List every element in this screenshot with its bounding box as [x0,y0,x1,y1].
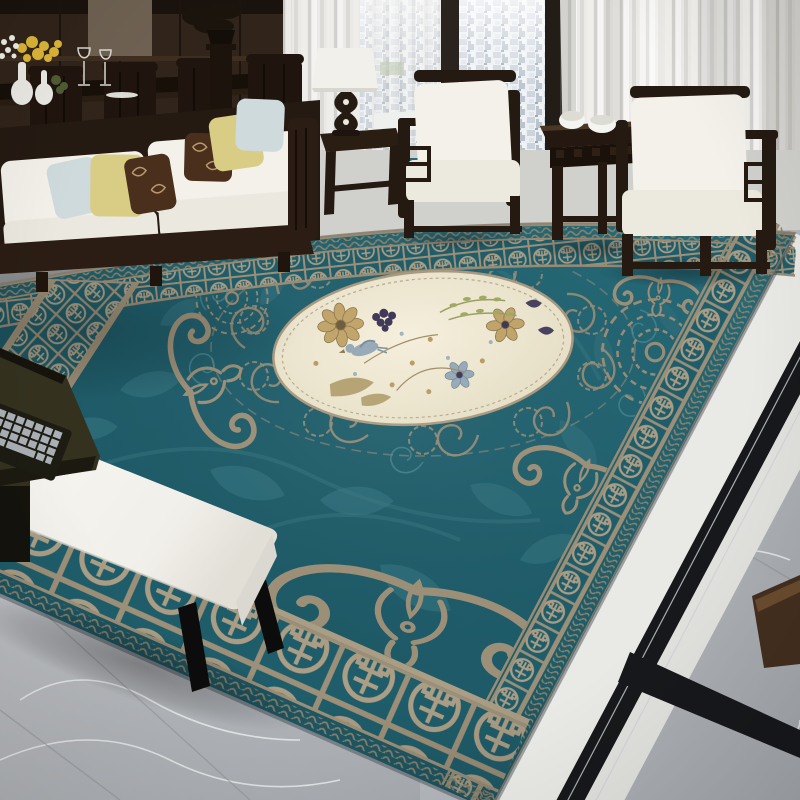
living-room-rug-photo [0,0,800,800]
tea-table-shadow [534,237,658,259]
armchair-left-shadow [398,229,526,251]
photo-canvas [0,0,800,800]
cabinet-alcove [88,0,152,56]
sofa-arm-right [288,118,318,240]
